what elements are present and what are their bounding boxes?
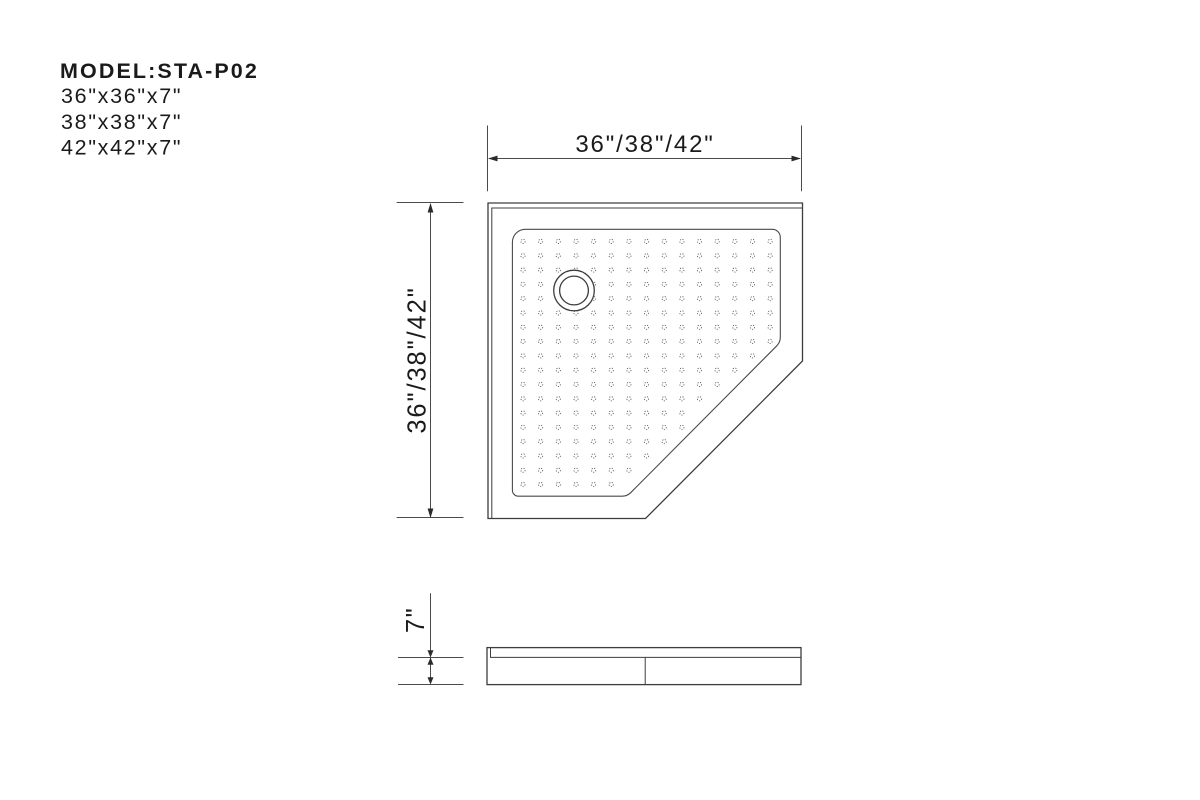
svg-text:36"/38"/42": 36"/38"/42" <box>575 131 714 158</box>
svg-text:36"x36"x7": 36"x36"x7" <box>61 84 182 108</box>
svg-text:7": 7" <box>402 607 430 633</box>
svg-text:38"x38"x7": 38"x38"x7" <box>61 110 182 134</box>
svg-text:36"/38"/42": 36"/38"/42" <box>403 286 431 433</box>
svg-text:MODEL:STA-P02: MODEL:STA-P02 <box>60 59 259 83</box>
svg-text:42"x42"x7": 42"x42"x7" <box>61 136 182 160</box>
